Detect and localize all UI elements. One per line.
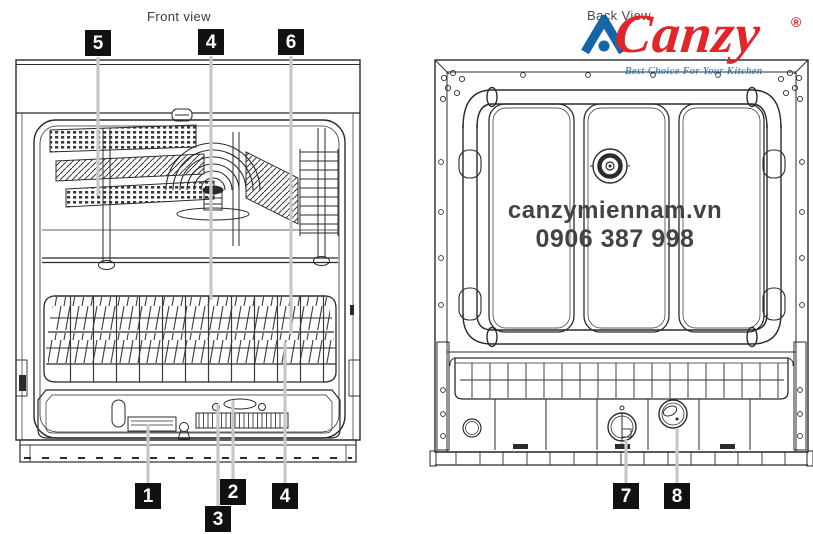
watermark-website: canzymiennam.vn (460, 197, 770, 225)
callout-7: 7 (613, 483, 639, 509)
tray-grid (472, 363, 778, 398)
diagram-canvas: Front view Back View canzymiennam.vn 090… (0, 0, 813, 534)
callout-3: 3 (205, 506, 231, 532)
registered-trademark-icon: ® (791, 14, 801, 30)
callout-5: 5 (85, 30, 111, 56)
screw-icons (439, 70, 805, 438)
callout-4-top: 4 (198, 29, 224, 55)
callout-4-bottom: 4 (272, 483, 298, 509)
watermark: canzymiennam.vn 0906 387 998 (460, 197, 770, 254)
brand-name: Canzy (612, 4, 764, 64)
callout-1: 1 (135, 483, 161, 509)
callout-8: 8 (664, 483, 690, 509)
front-view-drawing (16, 60, 360, 462)
watermark-phone: 0906 387 998 (460, 225, 770, 254)
drain-connection (659, 400, 687, 428)
callout-2: 2 (220, 479, 246, 505)
back-view-drawing (430, 60, 813, 466)
water-inlet-valve (608, 406, 636, 447)
brand-logo: Canzy ® Best Choice For Your Kitchen (570, 0, 813, 88)
callout-6: 6 (278, 29, 304, 55)
rail-ticks (456, 452, 785, 465)
round-port (590, 149, 630, 183)
brand-tagline: Best Choice For Your Kitchen (625, 66, 762, 77)
front-view-title: Front view (147, 9, 211, 24)
